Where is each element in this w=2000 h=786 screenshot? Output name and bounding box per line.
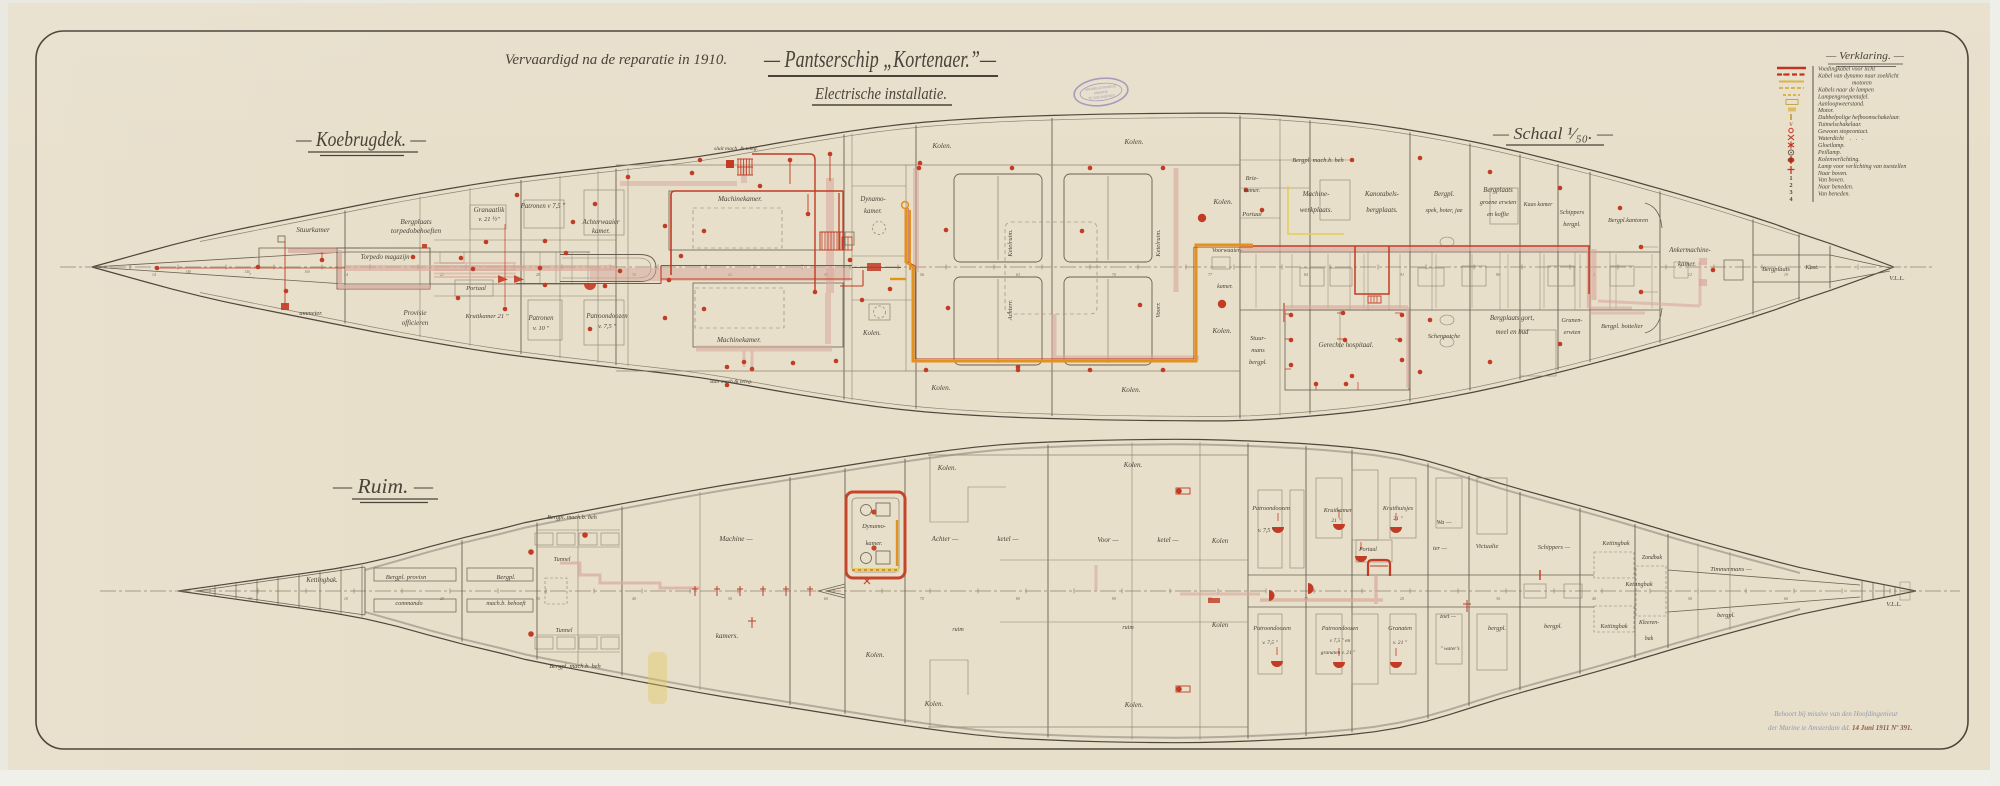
svg-text:Bergpl. mach.b. beh: Bergpl. mach.b. beh	[547, 514, 597, 521]
svg-text:Van beneden.: Van beneden.	[1818, 192, 1850, 198]
svg-text:Kruitkamer 21 ″: Kruitkamer 21 ″	[464, 313, 508, 320]
svg-text:Vervaardigd na de reparatie in: Vervaardigd na de reparatie in 1910.	[505, 52, 727, 68]
svg-text:Kaas kamer: Kaas kamer	[1523, 202, 1553, 208]
svg-text:Naar beneden.: Naar beneden.	[1817, 185, 1853, 191]
svg-text:Portaal: Portaal	[1241, 211, 1262, 218]
svg-text:v. 21 ½″: v. 21 ½″	[478, 216, 500, 223]
svg-text:Naar boven.: Naar boven.	[1817, 171, 1848, 177]
svg-text:Kleeren-: Kleeren-	[1638, 620, 1659, 626]
svg-text:Portaal: Portaal	[465, 285, 486, 292]
svg-text:91: 91	[1400, 272, 1404, 277]
svg-text:v. 10 ″: v. 10 ″	[533, 325, 550, 332]
svg-text:sluit mach & teleg.: sluit mach & teleg.	[710, 379, 753, 385]
svg-text:63: 63	[1016, 272, 1020, 277]
svg-text:kamer.: kamer.	[866, 540, 883, 547]
svg-text:meel en bud: meel en bud	[1496, 329, 1529, 336]
svg-text:spek, boter, jae: spek, boter, jae	[1425, 207, 1462, 214]
svg-text:Machine —: Machine —	[718, 535, 753, 543]
svg-text:groene erwten: groene erwten	[1480, 199, 1517, 206]
svg-text:Provisie: Provisie	[402, 309, 426, 317]
svg-text:Kolen.: Kolen.	[931, 384, 951, 392]
svg-text:V.L.L.: V.L.L.	[1889, 275, 1905, 282]
svg-text:Kolen.: Kolen.	[1212, 327, 1232, 335]
svg-text:Machine-: Machine-	[1302, 190, 1330, 198]
svg-text:Kolen.: Kolen.	[932, 142, 952, 150]
svg-text:148: 148	[185, 270, 191, 274]
svg-text:bergpl.: bergpl.	[1563, 221, 1580, 228]
svg-text:Schippers: Schippers	[1560, 209, 1585, 216]
svg-text:Kanotabels-: Kanotabels-	[1364, 190, 1400, 198]
svg-text:Bergpl. bottelier: Bergpl. bottelier	[1601, 323, 1644, 330]
svg-text:Brie-: Brie-	[1246, 175, 1259, 182]
svg-text:Dynamo-: Dynamo-	[861, 523, 886, 530]
svg-text:ruim: ruim	[1122, 625, 1134, 631]
svg-text:Ketelruim.: Ketelruim.	[1155, 229, 1162, 258]
svg-text:Tuimelschakelaar.: Tuimelschakelaar.	[1818, 122, 1862, 128]
svg-text:Patroondoozen: Patroondoozen	[1321, 626, 1358, 632]
svg-text:Gewoon stopcontact.: Gewoon stopcontact.	[1818, 129, 1869, 135]
svg-text:Kettingbak.: Kettingbak.	[305, 577, 338, 584]
svg-text:Bergpl.kantoren: Bergpl.kantoren	[1608, 217, 1648, 224]
svg-text:ketel —: ketel —	[1157, 536, 1179, 544]
svg-text:bergplaats.: bergplaats.	[1366, 206, 1398, 214]
svg-text:— Ruim. —: — Ruim. —	[332, 474, 433, 498]
svg-text:Patronen v 7,5 ″: Patronen v 7,5 ″	[520, 203, 566, 210]
svg-text:Aanloopweerstand.: Aanloopweerstand.	[1817, 101, 1865, 107]
svg-text:v. 21 ″: v. 21 ″	[1393, 640, 1408, 646]
svg-text:Timmermans —: Timmermans —	[1710, 566, 1752, 573]
svg-text:kamers.: kamers.	[716, 632, 739, 640]
svg-text:ammeter.: ammeter.	[299, 310, 323, 317]
svg-text:bergpl.: bergpl.	[1488, 625, 1506, 632]
svg-text:Peillamp.: Peillamp.	[1817, 150, 1841, 156]
svg-text:kamer.: kamer.	[1678, 261, 1696, 268]
svg-text:Granaatlik: Granaatlik	[474, 206, 506, 214]
svg-text:v 7,5 ″ en: v 7,5 ″ en	[1330, 638, 1351, 644]
svg-text:Kolen.: Kolen.	[862, 330, 881, 337]
svg-text:Kolen.: Kolen.	[1124, 138, 1144, 146]
svg-text:Patroondoozen: Patroondoozen	[1251, 505, 1290, 512]
svg-text:— Pantserschip „Kortenaer.”—: — Pantserschip „Kortenaer.”—	[763, 47, 996, 73]
svg-text:Kolen.: Kolen.	[1123, 461, 1143, 469]
svg-text:commando: commando	[395, 600, 422, 607]
svg-text:zoet —: zoet —	[1439, 614, 1457, 620]
svg-text:Gloeilamp.: Gloeilamp.	[1818, 143, 1845, 149]
svg-text:140: 140	[244, 270, 250, 274]
svg-text:Achterr.: Achterr.	[1007, 299, 1014, 321]
svg-text:V.L.L.: V.L.L.	[1886, 601, 1902, 608]
svg-text:der Marine te Amsterdam dd. 14: der Marine te Amsterdam dd. 14 Juni 1911…	[1768, 724, 1912, 732]
svg-text:Kolen.: Kolen.	[1121, 386, 1141, 394]
svg-text:— Schaal ¹⁄₅₀. —: — Schaal ¹⁄₅₀. —	[1492, 124, 1614, 143]
svg-text:Portaal: Portaal	[1358, 547, 1377, 553]
svg-text:Voedingkabel voor licht: Voedingkabel voor licht	[1818, 67, 1875, 73]
svg-text:Kolen: Kolen	[1211, 538, 1229, 545]
svg-text:bergpl.: bergpl.	[1544, 623, 1562, 630]
svg-text:Bergpl. mach.b. beh: Bergpl. mach.b. beh	[1292, 157, 1343, 164]
svg-text:officieren: officieren	[402, 319, 429, 327]
svg-text:Voor —: Voor —	[1097, 536, 1119, 544]
svg-text:Kolen.: Kolen.	[1213, 198, 1233, 206]
svg-text:Kabel van dynamo naar zoeklich: Kabel van dynamo naar zoeklicht	[1817, 73, 1899, 79]
svg-text:Bergplaats: Bergplaats	[400, 218, 431, 226]
svg-text:Zandbak: Zandbak	[1642, 555, 1663, 561]
svg-text:Electrische installatie.: Electrische installatie.	[814, 84, 947, 103]
svg-text:Bergpl. provisn: Bergpl. provisn	[386, 574, 427, 581]
svg-text:Tunnel: Tunnel	[554, 556, 571, 563]
svg-text:Victualie: Victualie	[1476, 543, 1499, 550]
svg-text:granaten v. 21 ″: granaten v. 21 ″	[1321, 650, 1356, 656]
svg-text:Stuurkamer: Stuurkamer	[296, 226, 330, 234]
svg-text:Kolen.: Kolen.	[924, 700, 944, 708]
svg-text:Wa —: Wa —	[1437, 519, 1452, 526]
svg-text:v. 7,5 ″: v. 7,5 ″	[1258, 528, 1275, 534]
svg-text:Kolen.: Kolen.	[937, 464, 957, 472]
svg-text:Kettingbak: Kettingbak	[1601, 540, 1629, 547]
svg-text:ruim: ruim	[952, 627, 964, 633]
svg-text:kamer.: kamer.	[1217, 284, 1233, 290]
svg-text:Schippers —: Schippers —	[1538, 544, 1571, 551]
svg-text:Bergplaats: Bergplaats	[1483, 187, 1513, 194]
svg-text:Kast.: Kast.	[1804, 264, 1819, 271]
svg-text:Lampengroepentafel.: Lampengroepentafel.	[1817, 93, 1869, 100]
svg-text:Stuur-: Stuur-	[1250, 335, 1266, 342]
svg-text:erwten: erwten	[1564, 329, 1581, 336]
svg-text:kamer.: kamer.	[1244, 187, 1260, 194]
svg-text:Patronen: Patronen	[527, 315, 554, 322]
svg-text:Schenpotche: Schenpotche	[1428, 333, 1460, 340]
svg-text:Voorwaaier-: Voorwaaier-	[1212, 248, 1242, 254]
svg-text:12: 12	[1688, 272, 1692, 277]
svg-text:en koffie: en koffie	[1487, 211, 1509, 218]
svg-text:Kruitkamer: Kruitkamer	[1323, 507, 1353, 514]
svg-text:Kolen.: Kolen.	[865, 651, 885, 659]
svg-text:Kettingbak: Kettingbak	[1599, 623, 1627, 630]
svg-text:sluit mach. & teleg.: sluit mach. & teleg.	[714, 146, 758, 152]
svg-text:mans: mans	[1251, 347, 1265, 354]
svg-text:Voorr.: Voorr.	[1155, 302, 1162, 318]
svg-text:Kolen.: Kolen.	[1124, 701, 1144, 709]
svg-text:Waterdicht . . .: Waterdicht . . .	[1818, 136, 1863, 142]
svg-text:kamer.: kamer.	[864, 208, 882, 215]
svg-text:Patroondoozen: Patroondoozen	[585, 313, 628, 320]
svg-text:bak: bak	[1645, 636, 1654, 642]
svg-text:v. 7,5 ″: v. 7,5 ″	[598, 323, 616, 330]
svg-text:Lamp voor verlichting van toes: Lamp voor verlichting van toestellen	[1817, 164, 1906, 170]
svg-text:— Koebrugdek. —: — Koebrugdek. —	[295, 127, 426, 151]
svg-text:Bergplaats gort,: Bergplaats gort,	[1490, 315, 1535, 322]
svg-text:Van boven.: Van boven.	[1818, 178, 1844, 184]
svg-text:Kolenverlichting.: Kolenverlichting.	[1817, 157, 1860, 163]
svg-text:Bergplaats: Bergplaats	[1762, 266, 1790, 273]
svg-text:1: 1	[1789, 175, 1792, 182]
svg-text:Ankermachine-: Ankermachine-	[1668, 247, 1711, 254]
svg-text:Machinekamer.: Machinekamer.	[717, 195, 762, 203]
svg-text:ter —: ter —	[1433, 545, 1447, 552]
svg-text:Torpedo magazijn: Torpedo magazijn	[360, 254, 410, 261]
svg-text:Granaten: Granaten	[1388, 625, 1412, 632]
svg-text:100: 100	[304, 270, 310, 274]
svg-text:kamer.: kamer.	[592, 228, 610, 235]
svg-text:84: 84	[1304, 272, 1308, 277]
svg-text:Dubbelpolige hefboomschakelaar: Dubbelpolige hefboomschakelaar.	[1817, 114, 1900, 121]
svg-text:Bergpl. mach.b. beh: Bergpl. mach.b. beh	[549, 663, 600, 670]
svg-text:Patroondoozen: Patroondoozen	[1252, 625, 1291, 632]
svg-text:v: v	[1789, 120, 1793, 128]
svg-text:Kettingbak: Kettingbak	[1624, 581, 1652, 588]
svg-text:Gerechte hospitaal.: Gerechte hospitaal.	[1319, 341, 1374, 349]
svg-text:″ water’s: ″ water’s	[1440, 646, 1459, 652]
svg-text:v. 7,5 ″: v. 7,5 ″	[1262, 640, 1278, 646]
svg-text:Ketelruim.: Ketelruim.	[1007, 229, 1014, 258]
svg-text:Kolen: Kolen	[1211, 622, 1229, 629]
svg-text:mach.b. behoeft: mach.b. behoeft	[486, 600, 526, 607]
svg-text:motoren: motoren	[1852, 80, 1872, 86]
svg-text:Dynamo-: Dynamo-	[859, 196, 886, 203]
svg-text:Bergpl.: Bergpl.	[1434, 190, 1455, 198]
svg-text:Kruithuisjes: Kruithuisjes	[1382, 505, 1414, 512]
svg-text:werkplaats.: werkplaats.	[1300, 206, 1333, 214]
svg-text:bergpl.: bergpl.	[1249, 359, 1267, 366]
svg-text:21 ″: 21 ″	[1331, 518, 1341, 524]
svg-text:bergpl.: bergpl.	[1717, 612, 1735, 619]
svg-text:ketel —: ketel —	[997, 535, 1019, 543]
svg-text:torpedobehoeften: torpedobehoeften	[391, 227, 442, 235]
svg-text:Tunnel: Tunnel	[556, 627, 573, 634]
svg-text:Behoort bij missive van den Ho: Behoort bij missive van den Hoofdingenie…	[1774, 710, 1898, 718]
svg-text:Machinekamer.: Machinekamer.	[716, 336, 761, 344]
svg-text:Achterwaaier: Achterwaaier	[582, 219, 620, 226]
svg-text:21 ″: 21 ″	[1393, 516, 1403, 522]
svg-text:Kabels naar de lampen: Kabels naar de lampen	[1817, 87, 1874, 93]
svg-text:Granen-: Granen-	[1562, 317, 1583, 324]
svg-text:Bergpl.: Bergpl.	[496, 574, 516, 581]
svg-text:14: 14	[344, 272, 348, 277]
svg-text:2: 2	[1789, 182, 1792, 189]
svg-text:14: 14	[152, 272, 156, 277]
svg-text:— Verklaring. —: — Verklaring. —	[1825, 51, 1905, 62]
svg-text:Motor.: Motor.	[1817, 108, 1834, 114]
svg-text:Achter —: Achter —	[931, 535, 959, 543]
